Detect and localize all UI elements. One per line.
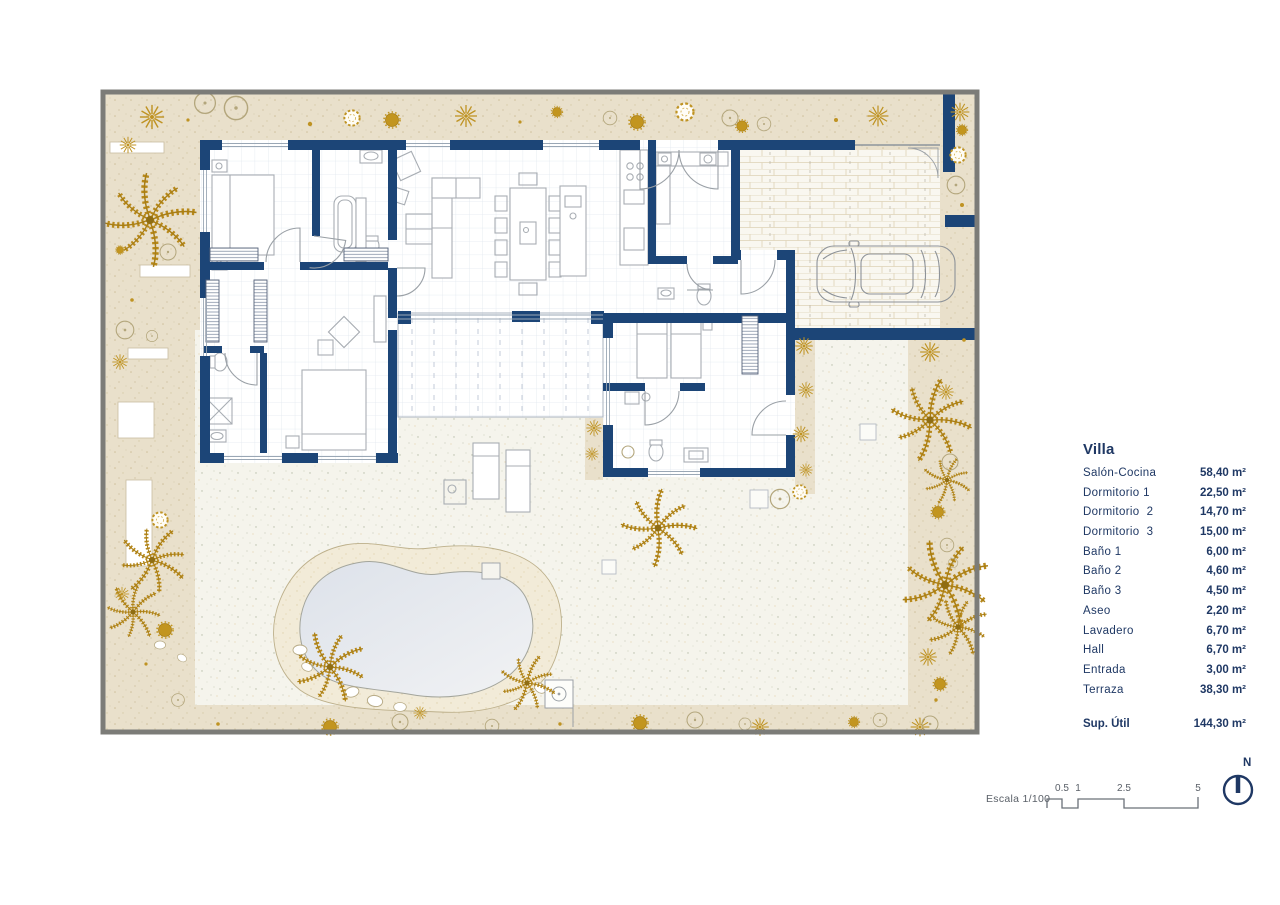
room-area: 38,30 m²	[1200, 684, 1246, 696]
room-name: Aseo	[1083, 605, 1111, 617]
room-area: 22,50 m²	[1200, 487, 1246, 499]
room-area: 15,00 m²	[1200, 526, 1246, 538]
area-table: Villa Salón-Cocina 58,40 m² Dormitorio 1…	[1083, 441, 1246, 730]
room-name: Dormitorio 3	[1083, 526, 1153, 538]
legend-row: Baño 2 4,60 m²	[1083, 565, 1246, 585]
floor-plan-page: Villa Salón-Cocina 58,40 m² Dormitorio 1…	[0, 0, 1280, 905]
scale-bar	[1047, 797, 1198, 808]
scale-label: Escala 1/100	[986, 793, 1050, 805]
room-name: Hall	[1083, 644, 1104, 656]
legend-row: Dormitorio 3 15,00 m²	[1083, 526, 1246, 546]
room-name: Baño 1	[1083, 546, 1122, 558]
scale-tick: 0.5	[1055, 783, 1069, 794]
legend-row: Dormitorio 1 22,50 m²	[1083, 487, 1246, 507]
room-area: 6,00 m²	[1206, 546, 1246, 558]
room-area: 3,00 m²	[1206, 664, 1246, 676]
total-label: Sup. Útil	[1083, 718, 1130, 730]
room-name: Entrada	[1083, 664, 1126, 676]
room-name: Lavadero	[1083, 625, 1134, 637]
legend-row: Terraza 38,30 m²	[1083, 684, 1246, 704]
room-name: Dormitorio 2	[1083, 506, 1153, 518]
north-arrow	[1224, 776, 1252, 804]
legend-row: Salón-Cocina 58,40 m²	[1083, 467, 1246, 487]
room-area: 6,70 m²	[1206, 644, 1246, 656]
scale-tick: 5	[1195, 783, 1201, 794]
room-name: Baño 2	[1083, 565, 1122, 577]
room-area: 4,60 m²	[1206, 565, 1246, 577]
north-label: N	[1243, 757, 1251, 769]
legend-row: Lavadero 6,70 m²	[1083, 625, 1246, 645]
legend-row: Baño 3 4,50 m²	[1083, 585, 1246, 605]
room-area: 6,70 m²	[1206, 625, 1246, 637]
room-area: 14,70 m²	[1200, 506, 1246, 518]
legend-row: Entrada 3,00 m²	[1083, 664, 1246, 684]
legend-title: Villa	[1083, 441, 1246, 458]
room-name: Salón-Cocina	[1083, 467, 1156, 479]
legend-row: Dormitorio 2 14,70 m²	[1083, 506, 1246, 526]
legend-row: Baño 1 6,00 m²	[1083, 546, 1246, 566]
legend-row: Aseo 2,20 m²	[1083, 605, 1246, 625]
room-area: 2,20 m²	[1206, 605, 1246, 617]
room-name: Baño 3	[1083, 585, 1122, 597]
scale-tick: 1	[1075, 783, 1081, 794]
legend-row: Hall 6,70 m²	[1083, 644, 1246, 664]
room-area: 58,40 m²	[1200, 467, 1246, 479]
room-area: 4,50 m²	[1206, 585, 1246, 597]
legend-total-row: Sup. Útil 144,30 m²	[1083, 718, 1246, 730]
scale-tick: 2.5	[1117, 783, 1131, 794]
room-name: Dormitorio 1	[1083, 487, 1150, 499]
room-name: Terraza	[1083, 684, 1124, 696]
total-area: 144,30 m²	[1194, 718, 1246, 730]
